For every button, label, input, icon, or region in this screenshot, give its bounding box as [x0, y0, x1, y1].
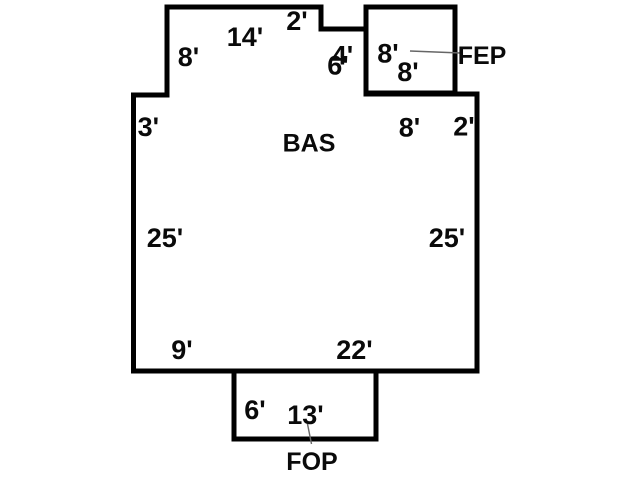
- svg-text:2': 2': [453, 112, 474, 142]
- svg-text:8': 8': [377, 39, 398, 69]
- svg-text:FOP: FOP: [286, 448, 337, 476]
- svg-text:2': 2': [286, 6, 307, 36]
- svg-text:14': 14': [227, 22, 263, 52]
- svg-text:25': 25': [429, 223, 465, 253]
- svg-text:13': 13': [287, 400, 323, 430]
- svg-text:22': 22': [336, 335, 372, 365]
- svg-text:6': 6': [327, 51, 348, 81]
- svg-text:8': 8': [397, 57, 418, 87]
- svg-text:6': 6': [244, 395, 265, 425]
- svg-text:8': 8': [178, 42, 199, 72]
- svg-text:3': 3': [138, 112, 159, 142]
- svg-text:9': 9': [171, 335, 192, 365]
- svg-text:8': 8': [399, 113, 420, 143]
- svg-text:25': 25': [147, 223, 183, 253]
- svg-text:BAS: BAS: [283, 130, 336, 158]
- svg-text:FEP: FEP: [458, 42, 507, 70]
